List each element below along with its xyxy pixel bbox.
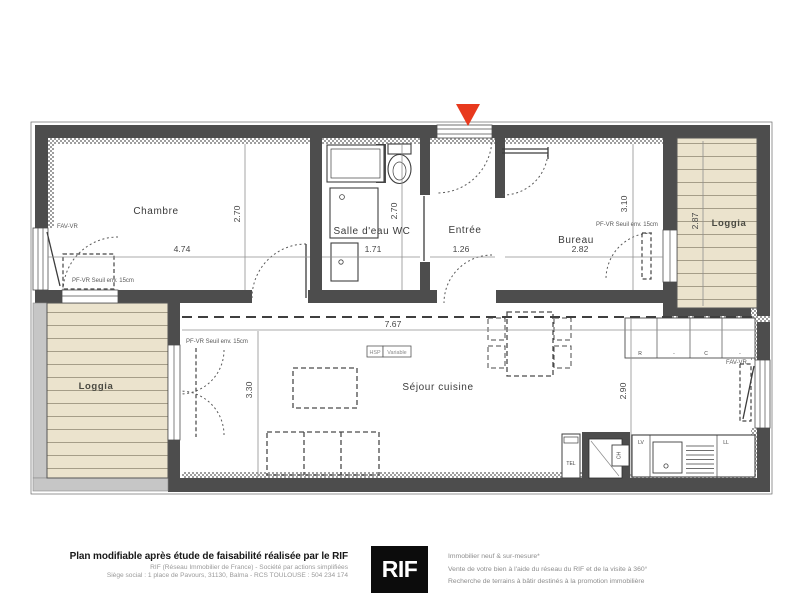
dining-table (507, 312, 553, 376)
wall-sdb-entree-2 (420, 262, 430, 290)
sofa (267, 432, 379, 475)
wall-loggia-left-bottom (33, 478, 168, 491)
wall-top-left (35, 125, 437, 138)
room-label-chambre: Chambre (133, 206, 178, 217)
washer-label: LL (723, 440, 729, 446)
dining-chair-3 (554, 318, 571, 340)
footer-left-block: Plan modifiable après étude de faisabili… (28, 551, 348, 579)
furniture (267, 312, 571, 475)
dim-sejour-h-left: 3.30 (244, 381, 254, 398)
bureau-pfvr-leaf (642, 233, 651, 279)
room-label-entree: Entrée (448, 225, 481, 236)
bathroom-counter-inner (331, 149, 380, 178)
wall-bureau-loggia-2 (663, 282, 677, 303)
dim-sejour-h-right: 2.90 (618, 382, 628, 399)
bureau-pfvr-arc (606, 233, 652, 279)
entree-sejour-door-arc (444, 255, 492, 303)
window-sejour-right (755, 360, 770, 428)
wc-tank (388, 144, 411, 154)
entry-door-arc (437, 138, 492, 193)
wall-bottom (168, 478, 770, 492)
rif-logo-text: RIF (382, 556, 418, 583)
dim-chambre-h: 2.70 (232, 205, 242, 222)
dim-chambre-w: 4.74 (174, 244, 191, 254)
hsp-label: HSP (369, 350, 380, 356)
wall-sejour-loggia-1 (168, 303, 180, 345)
tel-closet-shelf (564, 437, 578, 443)
kitchen-label-fridge: R (638, 351, 642, 357)
hsp-variable-label: Variable (387, 350, 406, 356)
wall-chambre-bottom-1 (35, 290, 62, 303)
floor-plan-drawing: R - C - TEL CH LV LL (0, 0, 800, 545)
footer-service-line-2: Vente de votre bien à l'aide du réseau d… (448, 564, 788, 577)
hsp-variable-tag: HSP Variable (367, 346, 411, 357)
wall-chambre-bottom-3 (308, 290, 437, 303)
ann-pfvr-sejour: PF-VR Seuil env. 15cm (186, 339, 248, 345)
footer-company-line: RIF (Réseau Immobilier de France) - Soci… (28, 564, 348, 571)
dim-salle-deau-h: 2.70 (389, 202, 399, 219)
right-favr-leaf (740, 364, 751, 421)
wall-sejour-loggia-2 (168, 440, 180, 478)
kitchen-counter-bottom (632, 435, 755, 477)
wall-left-upper (35, 125, 48, 228)
entry-door-threshold (437, 125, 492, 138)
left-window-swing (47, 232, 60, 286)
entry-marker-icon (456, 104, 480, 126)
washbasin (331, 243, 358, 281)
dim-bureau-w: 2.82 (572, 244, 589, 254)
wall-bureau-loggia-1 (663, 138, 677, 230)
room-label-loggia-right: Loggia (712, 218, 747, 229)
dim-bureau-h: 3.10 (619, 195, 629, 212)
footer: Plan modifiable après étude de faisabili… (0, 540, 800, 600)
footer-right-block: Immobilier neuf & sur-mesure* Vente de v… (448, 551, 788, 589)
dim-entree-w: 1.26 (453, 244, 470, 254)
wall-bureau-bottom (496, 290, 663, 303)
rif-logo: RIF (371, 546, 428, 593)
dim-sejour-w: 7.67 (385, 319, 402, 329)
dining-chair-1 (488, 318, 505, 340)
wall-top-right (492, 125, 770, 138)
room-label-sejour: Séjour cuisine (402, 382, 473, 393)
room-label-loggia-left: Loggia (79, 381, 114, 392)
dining-chair-2 (488, 346, 505, 368)
floor-plan-page: R - C - TEL CH LV LL (0, 0, 800, 600)
wall-right-upper (757, 125, 770, 360)
ann-favr-right: FAV-VR (726, 360, 748, 366)
kitchen-sink (653, 442, 682, 473)
right-window-swing (743, 366, 754, 419)
sejour-door-arc-upper (180, 350, 224, 394)
dining-chair-4 (554, 346, 571, 368)
dishwasher-label: LV (638, 440, 644, 446)
dim-salle-deau-w: 1.71 (365, 244, 382, 254)
footer-disclaimer: Plan modifiable après étude de faisabili… (28, 551, 348, 562)
footer-service-line-3: Recherche de terrains à bâtir destinés à… (448, 576, 788, 589)
kitchen-label-cooktop: C (704, 351, 708, 357)
ann-pfvr-chambre: PF-VR Seuil env. 15cm (72, 278, 134, 284)
washbasin-drain (339, 260, 343, 264)
tel-label: TEL (566, 461, 575, 467)
wall-chambre-bottom-2 (118, 290, 252, 303)
ann-favr-left: FAV-VR (57, 224, 79, 230)
sejour-door-arc-lower (180, 391, 224, 435)
footer-legal-line: Siège social : 1 place de Pavours, 31130… (28, 572, 348, 579)
dim-loggia-right-h: 2.87 (690, 212, 700, 229)
wall-loggia-left-side (33, 303, 47, 478)
wc-bowl-inner (393, 162, 406, 180)
shower-drain (340, 195, 345, 200)
kitchen: R - C - TEL CH LV LL (562, 318, 755, 480)
bureau-door-arc (503, 150, 548, 195)
boiler-label: CH (617, 452, 623, 460)
chambre-door-arc (252, 244, 306, 298)
wall-sdb-entree-1 (420, 138, 430, 195)
footer-service-line-1: Immobilier neuf & sur-mesure* (448, 551, 788, 564)
wall-entree-bureau (495, 138, 505, 198)
room-label-salle-deau: Salle d'eau WC (333, 226, 410, 237)
window-chambre-loggia (62, 290, 118, 303)
coffee-table (293, 368, 357, 408)
window-chambre-left (33, 228, 48, 290)
wall-chambre-sdb (310, 138, 322, 290)
ann-pfvr-bureau: PF-VR Seuil env. 15cm (596, 222, 658, 228)
